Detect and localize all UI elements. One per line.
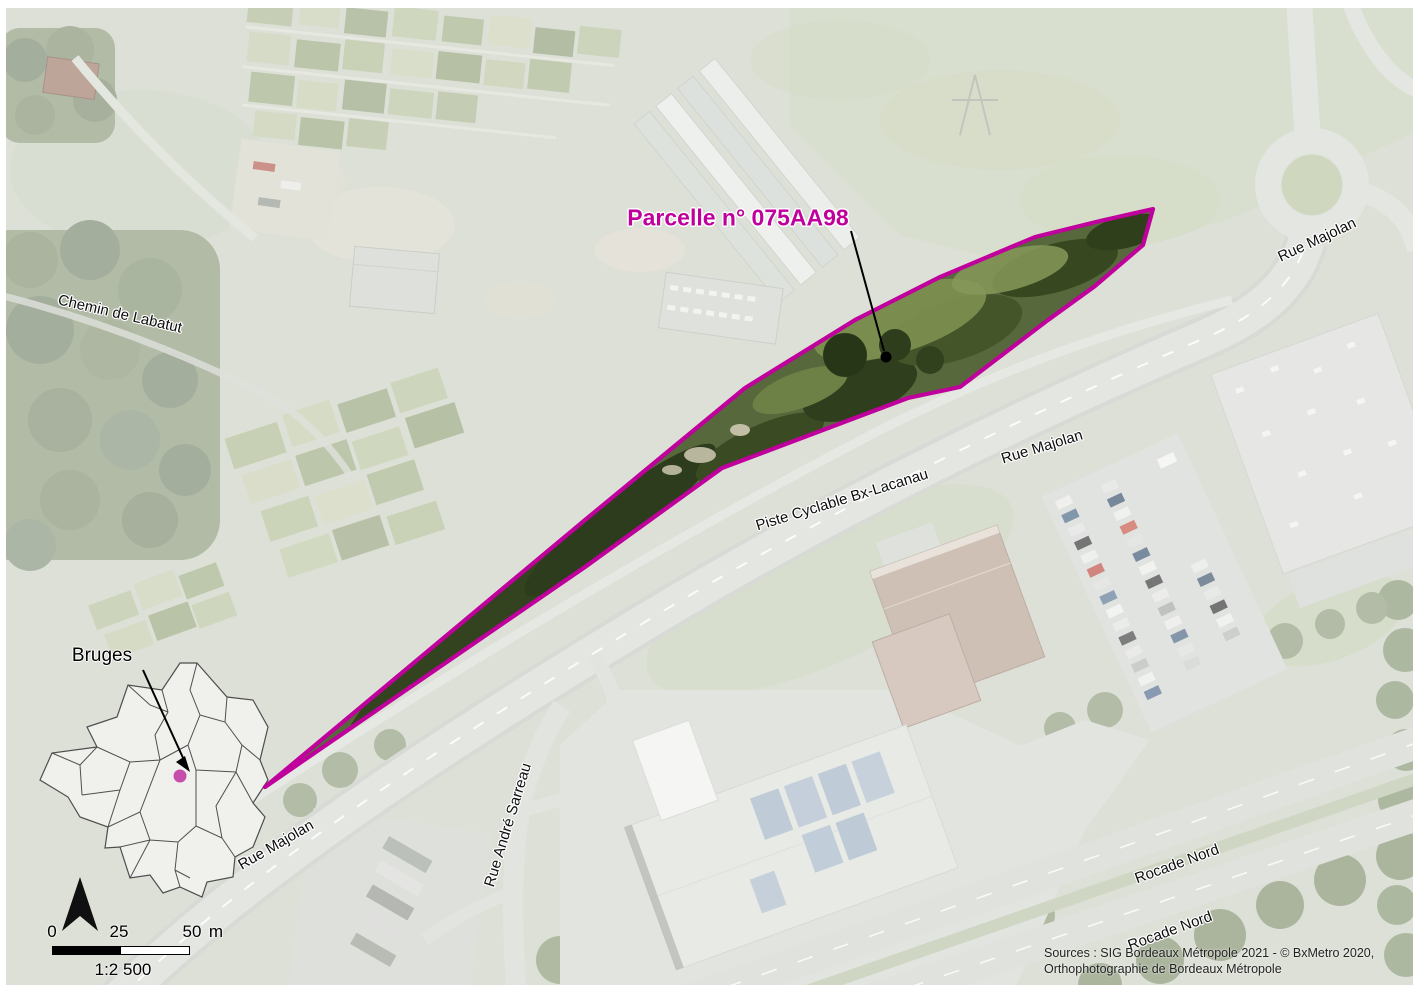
credits-line-2: Orthophotographie de Bordeaux Métropole bbox=[1044, 962, 1374, 978]
scale-tick-25: 25 bbox=[110, 922, 129, 942]
scale-tick-50: 50 bbox=[183, 922, 202, 942]
scale-tick-0: 0 bbox=[47, 922, 56, 942]
scale-ratio: 1:2 500 bbox=[95, 960, 152, 980]
credits: Sources : SIG Bordeaux Métropole 2021 - … bbox=[1044, 946, 1374, 977]
scale-bar-rule bbox=[52, 946, 190, 955]
inset-marker-dot bbox=[174, 770, 187, 783]
parcel-label: Parcelle n° 075AA98 bbox=[627, 205, 848, 232]
scale-unit: m bbox=[209, 922, 223, 942]
inset-label-bruges: Bruges bbox=[72, 645, 132, 667]
parcel-leader-dot bbox=[881, 352, 892, 363]
map-canvas: Parcelle n° 075AA98 Chemin de Labatut Ru… bbox=[0, 0, 1419, 1000]
credits-line-1: Sources : SIG Bordeaux Métropole 2021 - … bbox=[1044, 946, 1374, 962]
